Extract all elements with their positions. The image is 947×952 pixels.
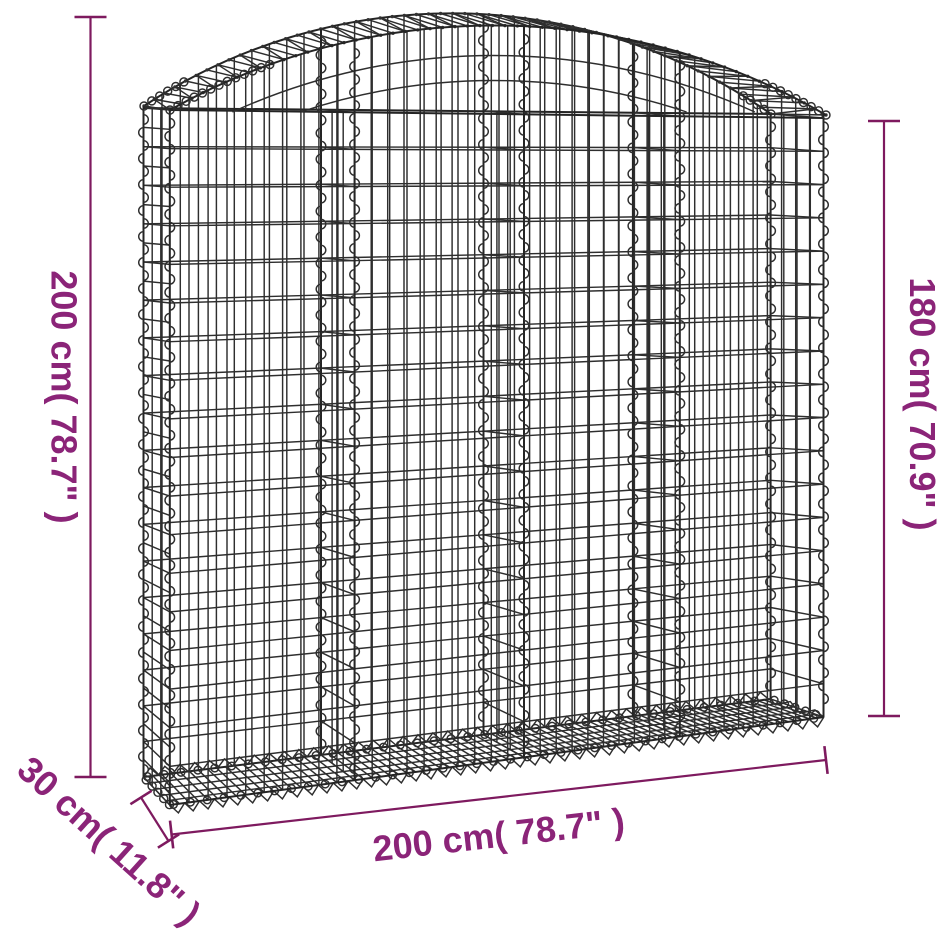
- svg-text:200 cm( 78.7" ): 200 cm( 78.7" ): [370, 800, 626, 869]
- svg-text:200 cm( 78.7" ): 200 cm( 78.7" ): [44, 270, 85, 523]
- svg-text:180 cm( 70.9" ): 180 cm( 70.9" ): [902, 277, 943, 530]
